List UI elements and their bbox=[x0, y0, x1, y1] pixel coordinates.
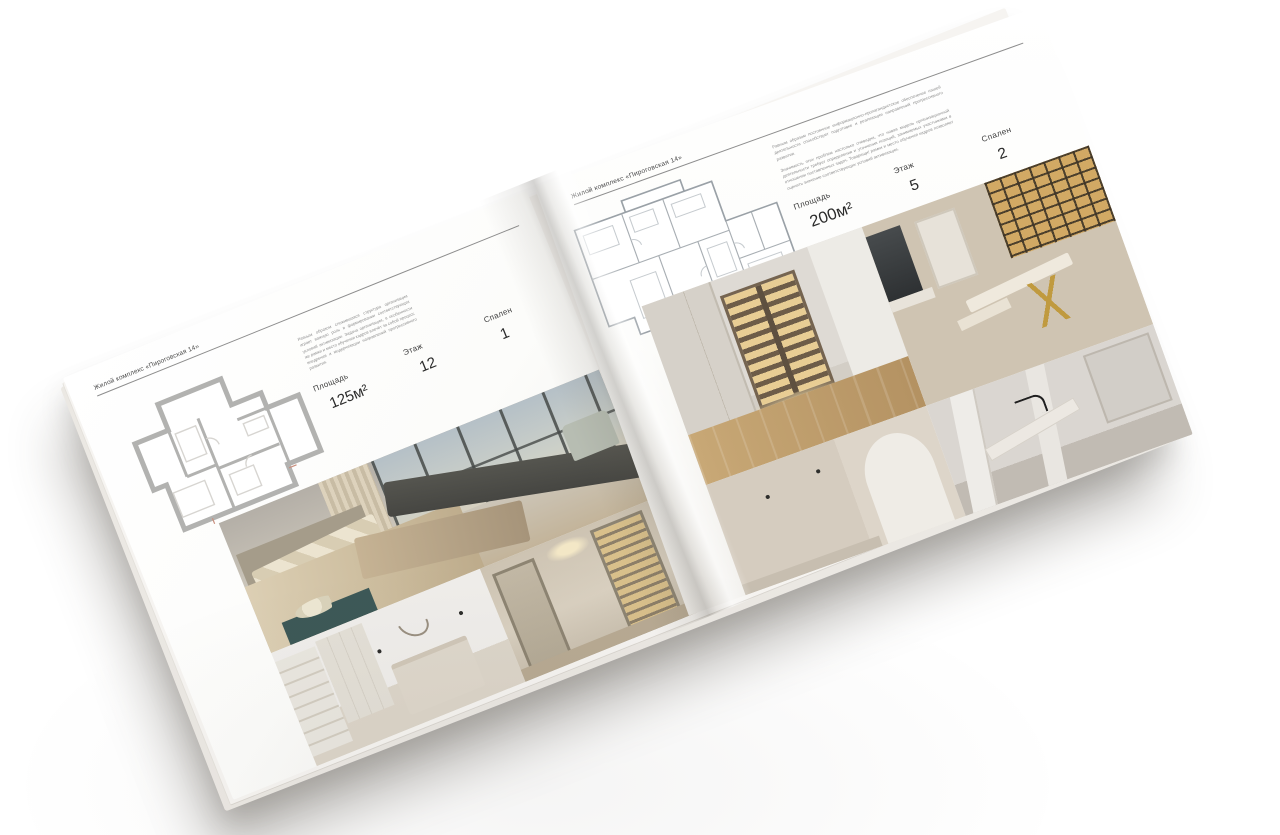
arch-wall-sconce bbox=[765, 495, 770, 500]
right-bedrooms-label: Спален bbox=[980, 125, 1012, 144]
right-spec-bedrooms: Спален 2 bbox=[980, 125, 1020, 167]
light-bedroom-bed bbox=[390, 635, 485, 715]
left-spec-floor: Этаж 12 bbox=[402, 339, 439, 380]
left-spec-area: Площадь 125м² bbox=[312, 366, 371, 415]
left-header-rule bbox=[97, 225, 519, 396]
brochure-spread: Жилой комплекс «Пироговская 14» bbox=[63, 0, 1175, 800]
arch-wall-skirting bbox=[742, 536, 882, 595]
left-floor-value: 12 bbox=[408, 354, 439, 380]
open-brochure: Жилой комплекс «Пироговская 14» bbox=[63, 0, 1175, 800]
right-description: Равным образом постоянное информационно-… bbox=[771, 84, 958, 197]
left-spec-bedrooms: Спален 1 bbox=[482, 305, 522, 347]
light-bedroom-sconce bbox=[377, 648, 382, 653]
right-floor-value: 5 bbox=[898, 175, 924, 198]
right-spec-floor: Этаж 5 bbox=[892, 160, 923, 198]
left-floor-label: Этаж bbox=[402, 339, 430, 357]
bathroom-mirror bbox=[1083, 332, 1173, 423]
light-bedroom-sconce bbox=[458, 610, 463, 615]
left-bedrooms-value: 1 bbox=[488, 320, 522, 347]
right-floor-label: Этаж bbox=[892, 160, 915, 176]
light-bedroom-moon-decor bbox=[393, 605, 433, 641]
arch-wall-sconce bbox=[815, 469, 820, 474]
brochure-mockup-scene: Жилой комплекс «Пироговская 14» bbox=[0, 0, 1280, 835]
study-backlit-shelving bbox=[984, 145, 1115, 258]
study-mirror bbox=[914, 208, 978, 289]
left-page-title: Жилой комплекс «Пироговская 14» bbox=[93, 215, 517, 392]
left-page-header: Жилой комплекс «Пироговская 14» bbox=[93, 215, 519, 397]
right-bedrooms-value: 2 bbox=[986, 140, 1021, 167]
